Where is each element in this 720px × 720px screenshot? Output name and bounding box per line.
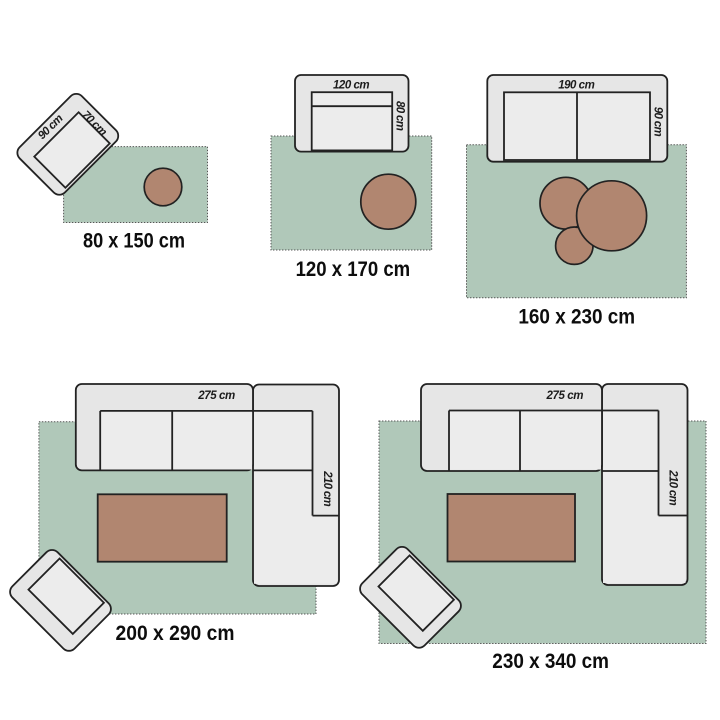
svg-text:210 cm: 210 cm xyxy=(321,470,333,507)
svg-text:80 x 150 cm: 80 x 150 cm xyxy=(83,230,185,253)
svg-text:90 cm: 90 cm xyxy=(652,107,664,137)
svg-text:210 cm: 210 cm xyxy=(667,469,679,506)
svg-text:275 cm: 275 cm xyxy=(546,390,584,402)
svg-text:275 cm: 275 cm xyxy=(197,390,235,402)
svg-text:230 x 340 cm: 230 x 340 cm xyxy=(492,650,609,673)
svg-text:80 cm: 80 cm xyxy=(393,101,405,131)
svg-text:190 cm: 190 cm xyxy=(558,79,595,91)
svg-text:120 cm: 120 cm xyxy=(333,80,370,92)
svg-text:120 x 170 cm: 120 x 170 cm xyxy=(296,258,411,281)
svg-text:160 x 230 cm: 160 x 230 cm xyxy=(518,305,635,328)
svg-text:200 x 290 cm: 200 x 290 cm xyxy=(116,622,235,645)
